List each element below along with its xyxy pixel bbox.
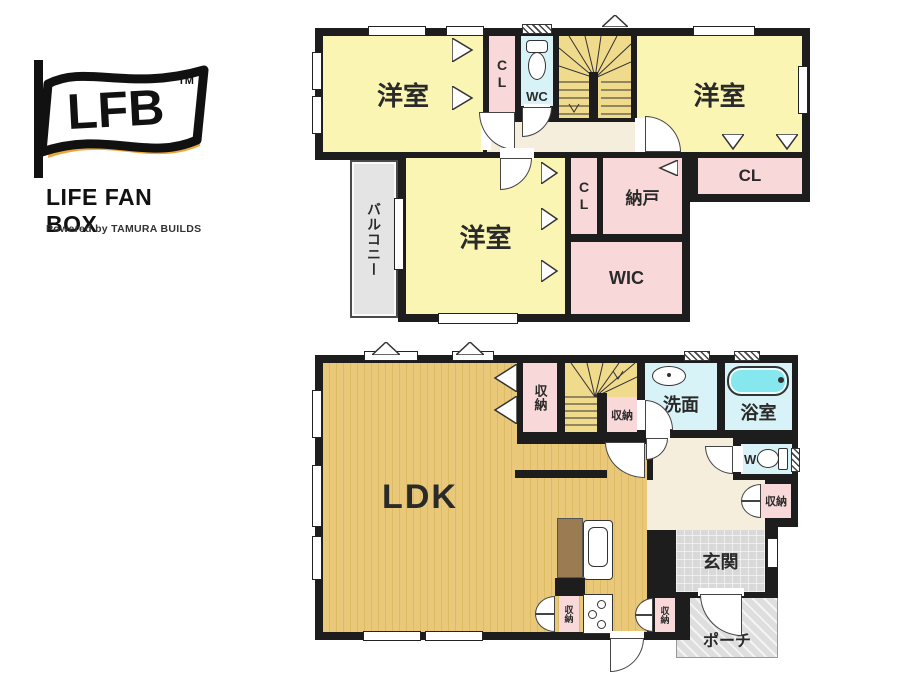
room-1f-ldk: LDK: [323, 363, 517, 632]
roof-vent-icon: [456, 342, 484, 355]
stove-burner-icon: [597, 620, 606, 629]
toilet-tank-icon: [778, 448, 788, 470]
vent-window: [734, 351, 760, 361]
label-2f-nando: 納戸: [626, 184, 660, 209]
stove-burner-icon: [597, 600, 606, 609]
closet-door-icon: [493, 396, 517, 424]
label-2f-cl-ne: CL: [739, 166, 762, 186]
closet-door-icon: [541, 208, 559, 230]
room-1f-storage-kitchen-right: 収納: [655, 598, 675, 632]
room-1f-storage-hall: 収納: [761, 484, 791, 518]
stove-burner-icon: [588, 610, 597, 619]
window: [438, 313, 518, 324]
label-1f-entrance: 玄関: [703, 548, 739, 574]
label-2f-bedroom-sw: 洋室: [459, 218, 511, 255]
roof-vent-icon: [372, 342, 400, 355]
room-1f-storage-kitchen-left: 収納: [559, 596, 579, 632]
vent-window: [684, 351, 710, 361]
window: [363, 631, 421, 641]
window: [798, 66, 808, 114]
label-2f-cl-nw: CL: [494, 57, 510, 91]
back-door-arc: [610, 638, 644, 672]
vent-window: [791, 448, 800, 472]
window: [446, 26, 484, 36]
label-1f-ldk: LDK: [382, 478, 458, 517]
label-2f-bedroom-nw: 洋室: [377, 76, 429, 113]
wall-1f-kitchen-stub: [555, 578, 585, 596]
label-1f-bathroom: 浴室: [741, 399, 777, 430]
lfb-logo: LFB TM: [26, 50, 216, 182]
floorplan-canvas: LFB TM LIFE FAN BOX Powered by TAMURA BU…: [0, 0, 920, 690]
window: [312, 465, 322, 527]
closet-door-icon: [541, 162, 559, 184]
room-2f-wic: WIC: [571, 242, 682, 314]
room-2f-cl-mid: CL: [571, 158, 597, 234]
label-2f-bedroom-ne: 洋室: [693, 76, 745, 113]
label-1f-storage-hall: 収納: [765, 493, 787, 509]
room-1f-storage-top: 収納: [523, 363, 557, 432]
label-1f-storage-kitchen-right: 収納: [659, 606, 672, 624]
wall-1f-stair-stub: [597, 393, 607, 432]
closet-door-icon: [493, 364, 517, 392]
label-2f-cl-mid: CL: [576, 179, 592, 213]
logo-tm: TM: [178, 75, 194, 87]
window: [425, 631, 483, 641]
bathtub-faucet-icon: [778, 377, 784, 383]
vent-window: [522, 24, 552, 34]
label-2f-wic: WIC: [609, 268, 644, 289]
room-1f-entrance: 玄関: [676, 530, 765, 592]
room-1f-storage-under-stairs: 収納: [607, 397, 637, 432]
logo-acronym: LFB: [66, 79, 166, 140]
logo-powered-by: Powered by TAMURA BUILDS: [46, 223, 201, 235]
entrance-sidelight: [767, 538, 778, 568]
window: [368, 26, 426, 36]
closet-door-icon: [776, 134, 798, 151]
kitchen-cabinet: [557, 518, 583, 578]
closet-door-icon: [658, 160, 678, 176]
closet-door-icon: [452, 86, 474, 110]
roof-vent-icon: [602, 15, 628, 27]
label-1f-storage-top: 収納: [531, 384, 550, 412]
room-2f-cl-ne: CL: [698, 158, 802, 194]
sink-faucet-icon: [667, 373, 671, 377]
window: [693, 26, 755, 36]
closet-door-icon: [722, 134, 744, 151]
window: [312, 96, 322, 134]
balcony-sliding-door: [394, 198, 404, 270]
window: [312, 536, 322, 580]
kitchen-sink-icon: [588, 527, 608, 567]
room-2f-cl-nw: CL: [489, 36, 515, 112]
window: [312, 52, 322, 90]
closet-door-icon: [541, 260, 559, 282]
wall-1f-ldk-stub: [515, 470, 607, 478]
closet-door-icon: [452, 38, 474, 62]
window: [312, 390, 322, 438]
label-1f-storage-kitchen-left: 収納: [563, 605, 576, 623]
stairs-2f-down-arrow: [569, 104, 579, 112]
wall-2f-stair-stub: [589, 72, 598, 118]
label-1f-storage-under-stairs: 収納: [611, 407, 633, 423]
toilet-bowl-icon: [757, 449, 779, 468]
room-2f-balcony: バルコニー: [350, 160, 398, 318]
label-balcony: バルコニー: [364, 202, 384, 277]
toilet-bowl-icon: [528, 52, 546, 80]
